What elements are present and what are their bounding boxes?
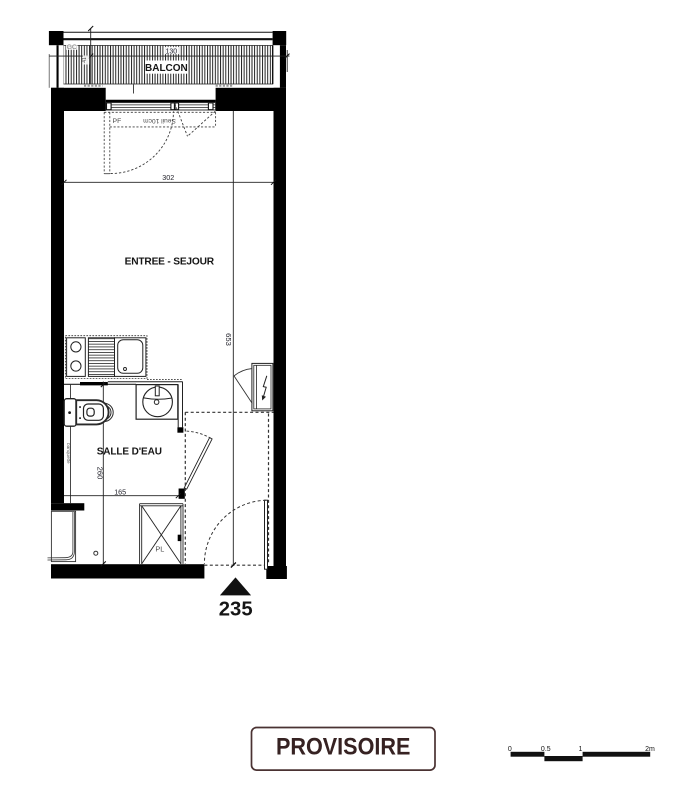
svg-text:GC: GC — [67, 44, 77, 51]
svg-text:PROVISOIRE: PROVISOIRE — [276, 733, 410, 760]
svg-text:PF: PF — [113, 118, 122, 125]
svg-text:BALCON: BALCON — [145, 63, 188, 74]
svg-text:260: 260 — [96, 467, 105, 480]
svg-text:235: 235 — [219, 598, 253, 620]
svg-text:2m: 2m — [645, 746, 655, 753]
svg-text:41: 41 — [82, 57, 88, 63]
svg-text:130: 130 — [165, 48, 177, 55]
svg-text:0.5: 0.5 — [541, 746, 551, 753]
svg-text:165: 165 — [114, 487, 126, 496]
svg-text:PL: PL — [155, 544, 164, 553]
svg-text:SALLE D'EAU: SALLE D'EAU — [97, 446, 162, 457]
svg-text:1: 1 — [579, 746, 583, 753]
svg-text:0: 0 — [508, 746, 512, 753]
svg-text:Seuil 10cm: Seuil 10cm — [143, 117, 176, 124]
svg-text:302: 302 — [162, 173, 174, 182]
svg-text:653: 653 — [224, 333, 233, 346]
svg-text:banquette: banquette — [66, 443, 71, 464]
svg-text:ENTREE - SEJOUR: ENTREE - SEJOUR — [125, 257, 215, 268]
